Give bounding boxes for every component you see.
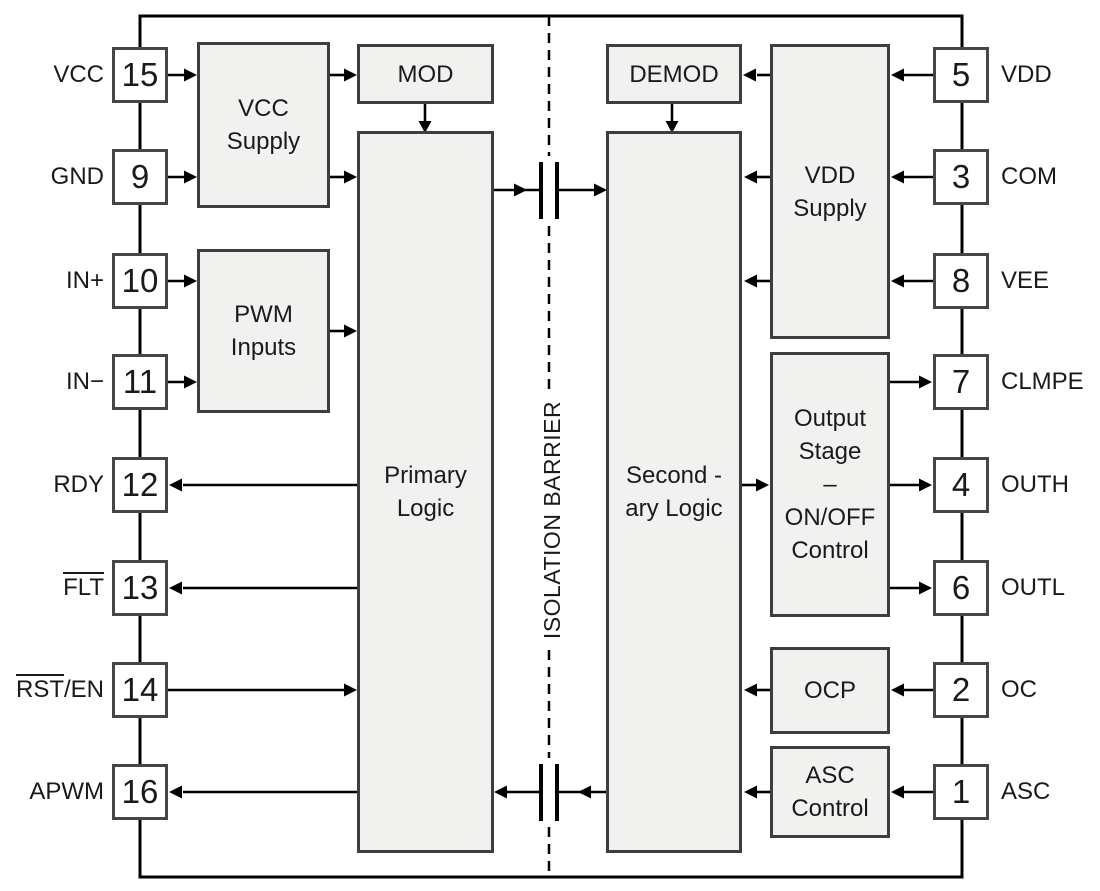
pin-label-text: VCC (53, 61, 104, 88)
pin-box-13: 13 (112, 560, 168, 616)
pin-box-16: 16 (112, 764, 168, 820)
arrowhead (744, 684, 757, 697)
block-label-line: Output (794, 402, 866, 435)
pin-label-rdy: RDY (4, 469, 104, 501)
wire-secondary-logic-to-output-stage (742, 479, 769, 492)
block-secondary-logic: Second - ary Logic (606, 131, 742, 853)
arrowhead (756, 479, 769, 492)
pin-number: 9 (131, 158, 149, 196)
arrowhead (169, 786, 182, 799)
block-label-line: – (823, 468, 836, 501)
arrowhead (184, 69, 197, 82)
block-label-line: Second - (626, 459, 722, 492)
arrowhead (169, 479, 182, 492)
block-demod: DEMOD (606, 44, 742, 104)
wire-output-stage-to-pin6 (890, 582, 932, 595)
overline-text: RST (16, 674, 64, 703)
pin-number: 13 (122, 569, 159, 607)
arrowhead (184, 171, 197, 184)
arrowhead (344, 684, 357, 697)
pin-label-vcc: VCC (4, 59, 104, 91)
arrowhead (919, 582, 932, 595)
wire-primary-logic-to-pin13 (169, 582, 357, 595)
pin-label-asc: ASC (1001, 776, 1098, 808)
pin-box-7: 7 (933, 354, 989, 410)
arrowhead (743, 69, 756, 82)
pin-number: 4 (952, 466, 970, 504)
pin-box-9: 9 (112, 149, 168, 205)
pin-box-14: 14 (112, 662, 168, 718)
wire-primary-logic-to-pin16 (169, 786, 357, 799)
wire-demod-to-secondary-logic (666, 104, 679, 133)
pin-box-15: 15 (112, 47, 168, 103)
pin-number: 16 (122, 773, 159, 811)
block-label-line: Supply (793, 192, 866, 225)
wire-output-stage-to-pin7 (890, 376, 932, 389)
pin-box-11: 11 (112, 354, 168, 410)
block-label-line: MOD (398, 58, 454, 91)
wire-vcc-supply-to-mod (330, 69, 357, 82)
block-vcc-supply: VCC Supply (197, 42, 330, 208)
pin-label-outh: OUTH (1001, 469, 1098, 501)
wire-pin2-to-ocp (891, 684, 933, 697)
arrowhead (891, 171, 904, 184)
block-label-line: VDD (805, 159, 856, 192)
wire-asc-control-to-secondary-logic (744, 786, 770, 799)
pin-label-in-minus: IN− (4, 366, 104, 398)
arrowhead (744, 171, 757, 184)
pin-number: 7 (952, 363, 970, 401)
pin-box-2: 2 (933, 662, 989, 718)
block-label-line: OCP (804, 674, 856, 707)
arrowhead (891, 69, 904, 82)
block-label-line: Logic (397, 492, 454, 525)
pin-label-vdd: VDD (1001, 59, 1098, 91)
arrowhead (344, 171, 357, 184)
wire-capacitor-top-to-secondary (559, 184, 607, 197)
pin-number: 14 (122, 671, 159, 709)
capacitor-plate (555, 764, 559, 821)
wire-capacitor-bottom-to-primary (494, 786, 539, 799)
pin-number: 5 (952, 56, 970, 94)
pin-box-6: 6 (933, 560, 989, 616)
capacitor-bottom-icon (539, 764, 559, 821)
block-diagram: VCC Supply PWM Inputs MOD Primary Logic … (0, 0, 1100, 891)
arrowhead (184, 275, 197, 288)
overline-text: FLT (63, 572, 104, 601)
pin-number: 2 (952, 671, 970, 709)
pin-number: 3 (952, 158, 970, 196)
wire-pin10-to-pwm-inputs (168, 275, 197, 288)
pin-label-text: RDY (53, 471, 104, 498)
pin-label-rst-en: RST/EN (4, 674, 104, 706)
block-label-line: Inputs (231, 331, 296, 364)
wire-vdd-supply-to-demod (743, 69, 770, 82)
arrowhead (891, 275, 904, 288)
capacitor-plate (539, 764, 543, 821)
pin-label-vee: VEE (1001, 265, 1098, 297)
arrowhead (919, 479, 932, 492)
arrowhead (891, 684, 904, 697)
pin-box-3: 3 (933, 149, 989, 205)
capacitor-top-icon (539, 162, 559, 219)
block-label-line: Control (791, 792, 868, 825)
block-ocp: OCP (770, 647, 890, 734)
block-mod: MOD (357, 44, 494, 104)
wire-vdd-supply-to-secondary-logic-upper (744, 171, 770, 184)
arrowhead (578, 786, 591, 799)
block-asc-control: ASC Control (770, 746, 890, 838)
arrowhead (494, 786, 507, 799)
capacitor-plate (539, 162, 543, 219)
isolation-barrier-label: ISOLATION BARRIER (538, 390, 566, 650)
wire-vdd-supply-to-secondary-logic-lower (744, 275, 770, 288)
wire-pin5-to-vdd-supply (891, 69, 933, 82)
pin-number: 8 (952, 262, 970, 300)
wire-primary-to-capacitor-top (494, 184, 539, 197)
block-label-line: VCC (238, 92, 289, 125)
wire-secondary-to-capacitor-bottom (559, 786, 606, 799)
block-output-stage: Output Stage – ON/OFF Control (770, 352, 890, 617)
block-label-line: PWM (234, 298, 293, 331)
pin-box-1: 1 (933, 764, 989, 820)
block-label-line: ON/OFF (785, 501, 876, 534)
capacitor-plate (555, 162, 559, 219)
arrowhead (891, 786, 904, 799)
arrowhead (344, 69, 357, 82)
pin-number: 12 (122, 466, 159, 504)
pin-label-in-plus: IN+ (4, 265, 104, 297)
wire-vcc-supply-to-primary-logic (330, 171, 357, 184)
pin-box-8: 8 (933, 253, 989, 309)
pin-box-10: 10 (112, 253, 168, 309)
pin-label-text: /EN (64, 676, 104, 703)
pin-number: 6 (952, 569, 970, 607)
wire-pin15-to-vcc-supply (168, 69, 197, 82)
block-label-line: Primary (384, 459, 467, 492)
block-pwm-inputs: PWM Inputs (197, 249, 330, 413)
wire-mod-to-primary-logic (419, 104, 432, 133)
arrowhead (744, 786, 757, 799)
pin-label-clmpe: CLMPE (1001, 366, 1098, 398)
pin-number: 15 (122, 56, 159, 94)
block-label-line: Stage (799, 435, 862, 468)
pin-number: 1 (952, 773, 970, 811)
wire-ocp-to-secondary-logic (744, 684, 770, 697)
wire-pin9-to-vcc-supply (168, 171, 197, 184)
pin-box-5: 5 (933, 47, 989, 103)
block-vdd-supply: VDD Supply (770, 44, 890, 339)
block-label-line: Supply (227, 125, 300, 158)
pin-label-apwm: APWM (4, 776, 104, 808)
wire-primary-logic-to-pin12 (169, 479, 357, 492)
pin-label-com: COM (1001, 161, 1098, 193)
block-primary-logic: Primary Logic (357, 131, 494, 853)
block-label-line: DEMOD (629, 58, 718, 91)
wire-output-stage-to-pin4 (890, 479, 932, 492)
pin-box-12: 12 (112, 457, 168, 513)
wire-pin8-to-vdd-supply (891, 275, 933, 288)
arrowhead (514, 184, 527, 197)
pin-box-4: 4 (933, 457, 989, 513)
pin-label-outl: OUTL (1001, 572, 1098, 604)
pin-label-text: APWM (29, 778, 104, 805)
pin-number: 10 (122, 262, 159, 300)
wire-pin1-to-asc-control (891, 786, 933, 799)
pin-label-text: IN− (66, 368, 104, 395)
arrowhead (184, 376, 197, 389)
arrowhead (344, 325, 357, 338)
block-label-line: ary Logic (625, 492, 722, 525)
wire-pin3-to-vdd-supply (891, 171, 933, 184)
arrowhead (919, 376, 932, 389)
pin-label-flt: FLT (4, 572, 104, 604)
block-label-line: ASC (805, 759, 854, 792)
pin-label-text: GND (51, 163, 104, 190)
block-label-line: Control (791, 534, 868, 567)
pin-label-gnd: GND (4, 161, 104, 193)
pin-label-text: IN+ (66, 267, 104, 294)
wire-pin11-to-pwm-inputs (168, 376, 197, 389)
arrowhead (169, 582, 182, 595)
wire-pwm-inputs-to-primary-logic (330, 325, 357, 338)
pin-number: 11 (123, 363, 157, 401)
wire-pin14-to-primary-logic (168, 684, 357, 697)
pin-label-oc: OC (1001, 674, 1098, 706)
arrowhead (744, 275, 757, 288)
